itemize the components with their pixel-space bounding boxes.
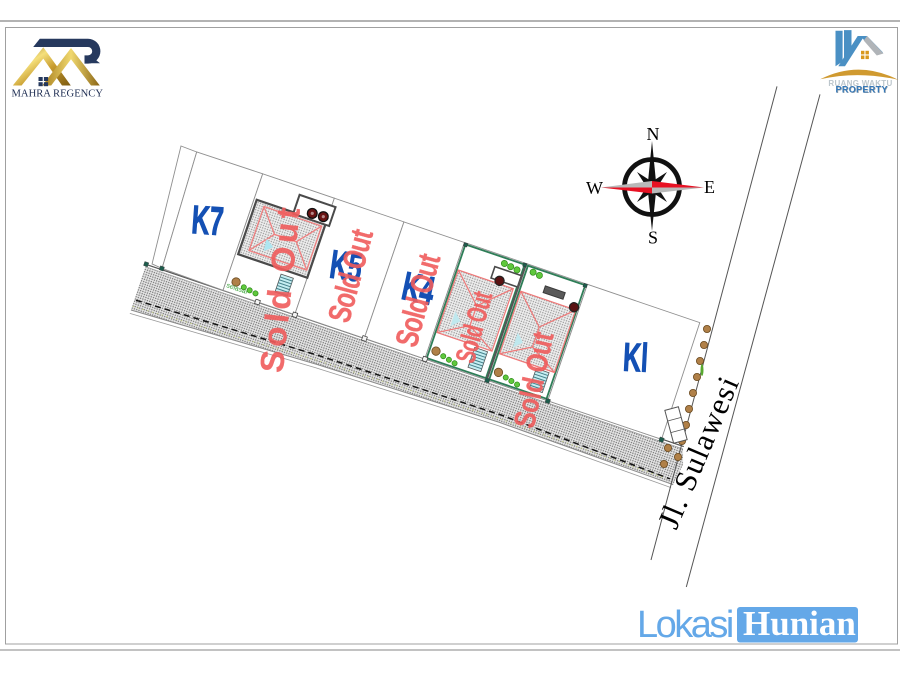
svg-text:E: E [704, 177, 715, 197]
svg-text:Lokasi: Lokasi [637, 604, 732, 646]
svg-text:W: W [586, 178, 603, 198]
svg-text:Hunian: Hunian [743, 604, 856, 643]
svg-text:Kl: Kl [622, 336, 649, 382]
svg-text:S: S [648, 228, 658, 248]
svg-text:N: N [647, 124, 660, 144]
svg-text:K7: K7 [190, 198, 225, 245]
svg-text:PROPERTY: PROPERTY [836, 84, 888, 94]
svg-text:MAHRA REGENCY: MAHRA REGENCY [12, 89, 104, 100]
